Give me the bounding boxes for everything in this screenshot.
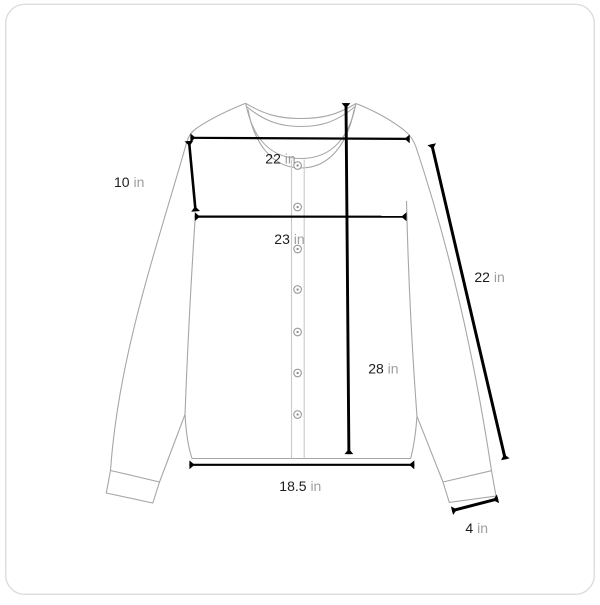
svg-text:22 in: 22 in <box>474 269 504 285</box>
svg-text:18.5 in: 18.5 in <box>279 478 321 494</box>
svg-text:28 in: 28 in <box>368 361 398 377</box>
svg-text:4 in: 4 in <box>465 520 488 536</box>
svg-text:23 in: 23 in <box>274 231 304 247</box>
svg-text:22 in: 22 in <box>265 151 295 167</box>
svg-text:10 in: 10 in <box>114 174 144 190</box>
